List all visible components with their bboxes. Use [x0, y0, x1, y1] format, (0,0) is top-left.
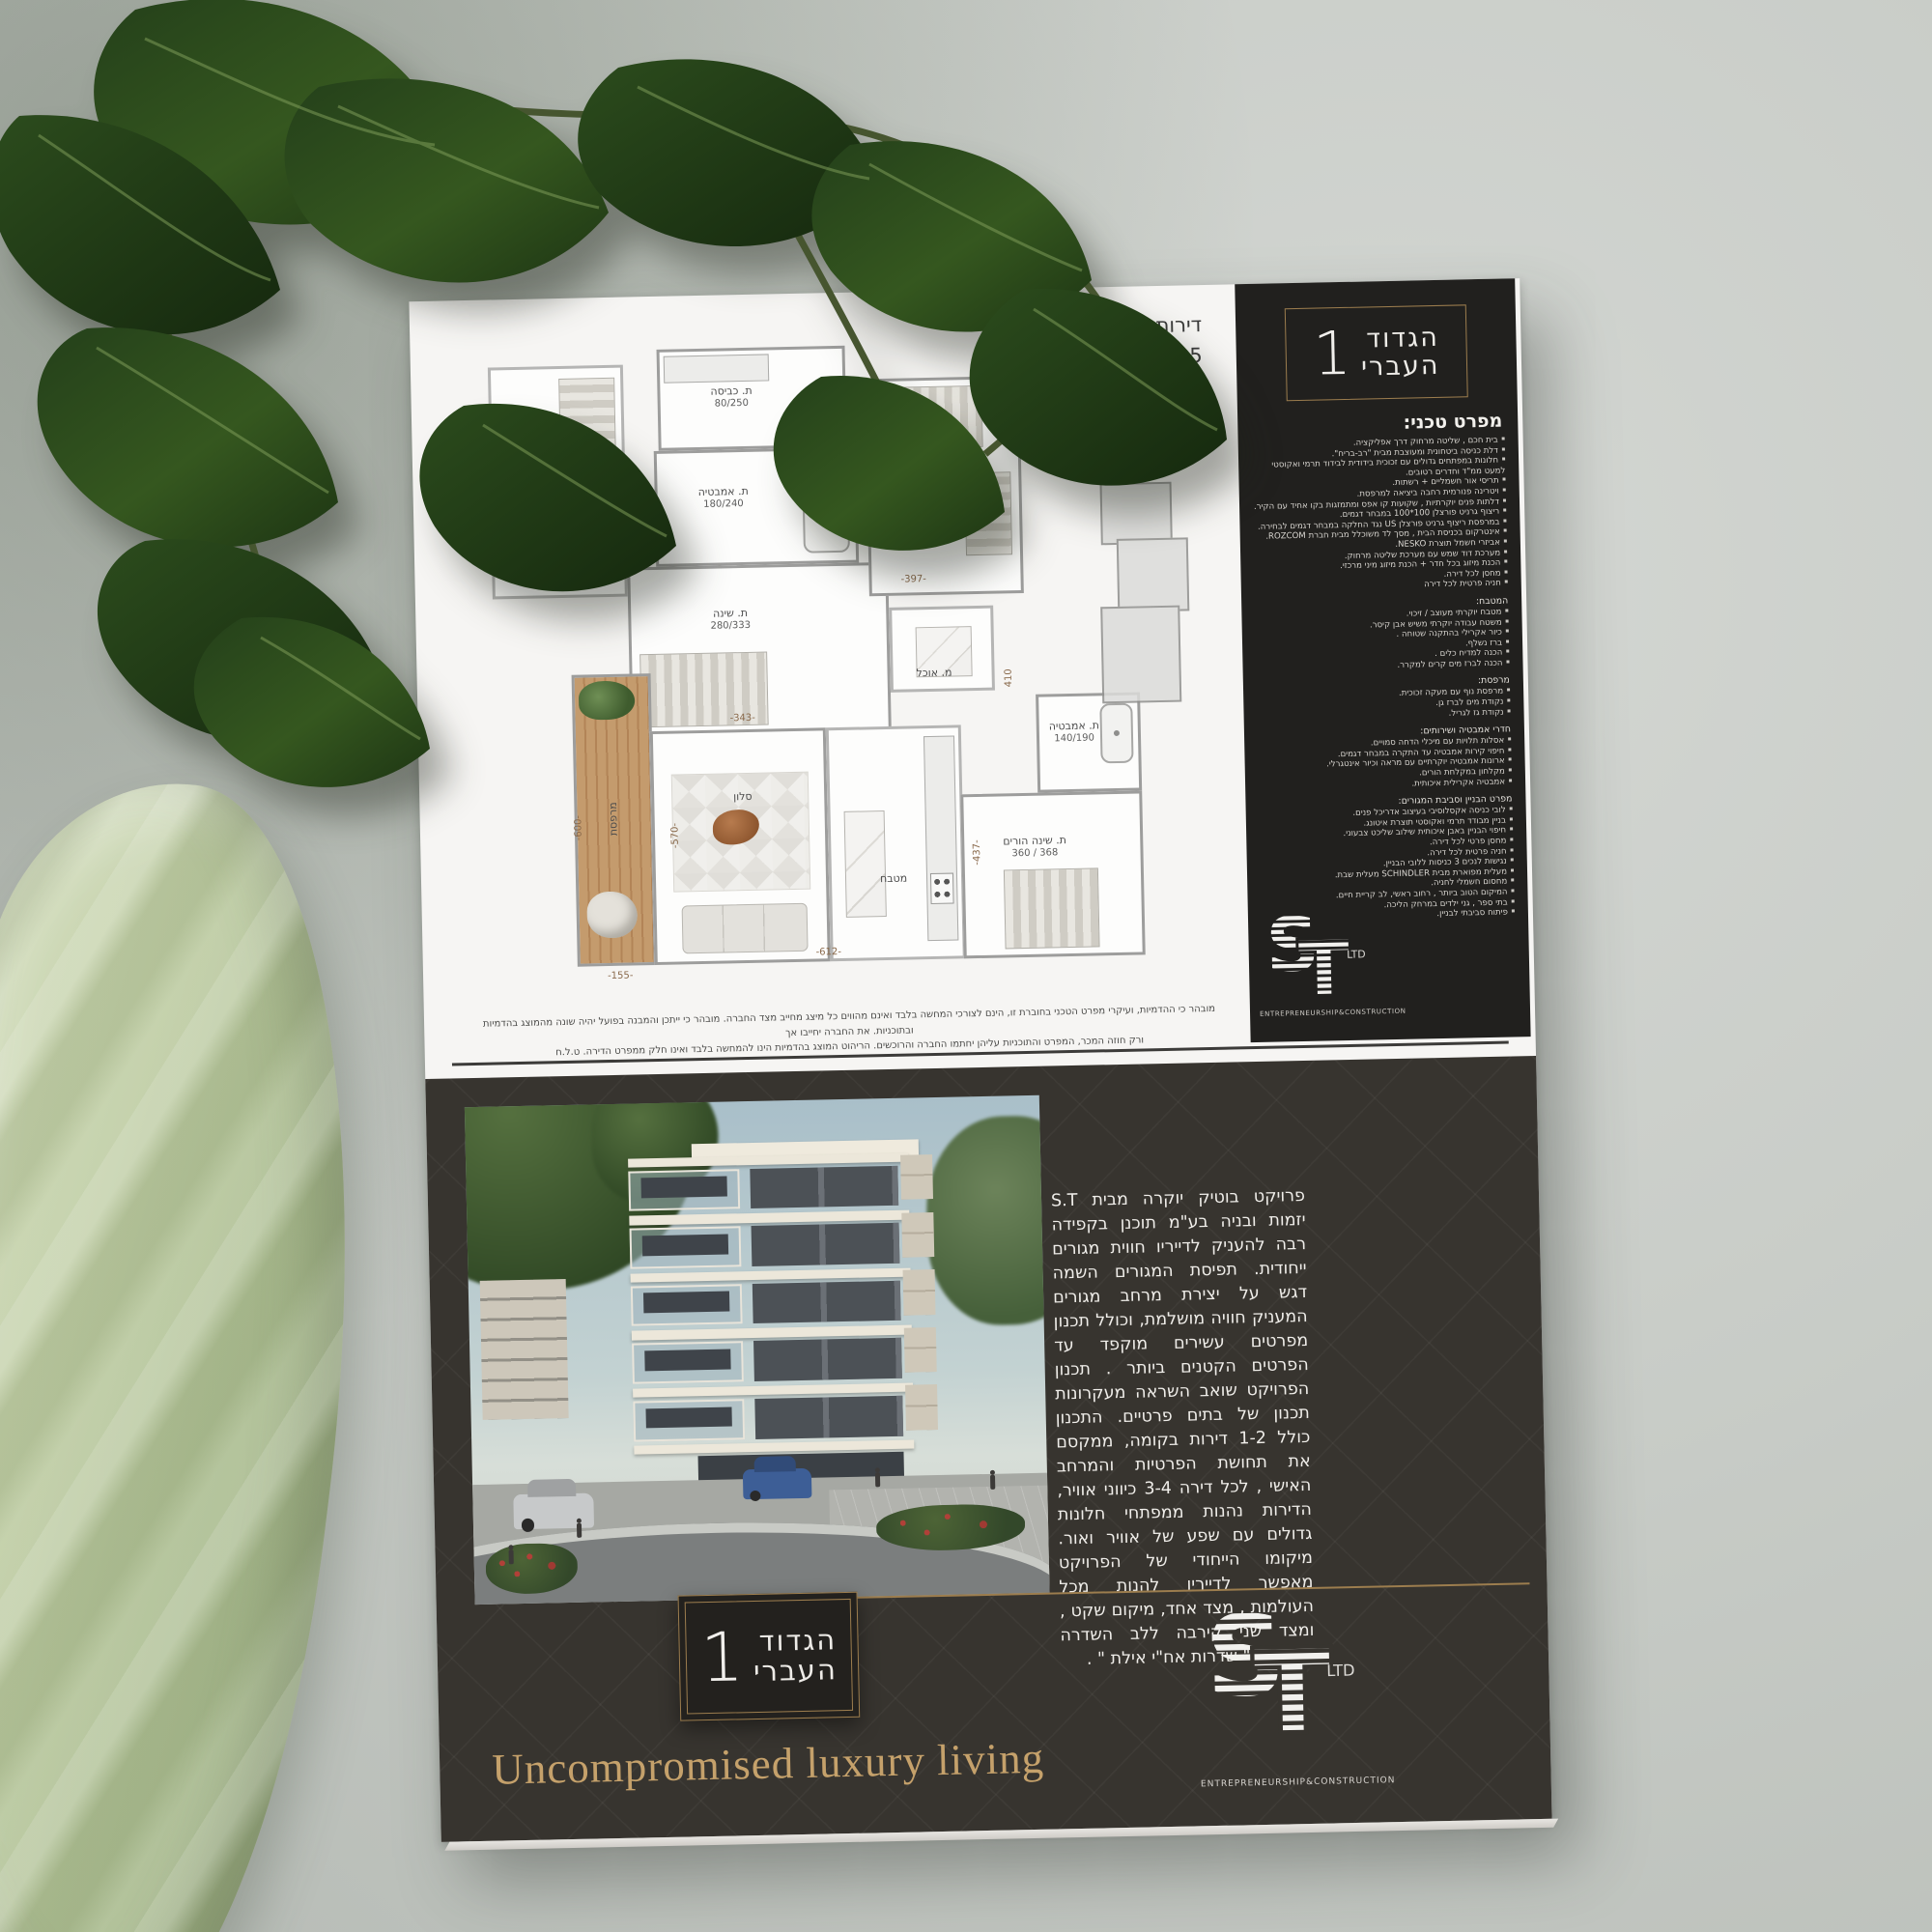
svg-text:LTD: LTD: [1326, 1662, 1355, 1681]
kitchen-counter: [923, 735, 958, 941]
laundry-machines: [664, 354, 770, 383]
brand-wordmark: הגדוד העברי: [1360, 324, 1440, 382]
room-label-balcony: מרפסת: [607, 802, 620, 836]
room-bed2: [627, 562, 892, 737]
room-label-laundry: ת. כביסה80/250: [710, 384, 753, 411]
person-silhouette: [874, 1472, 879, 1487]
brand-numeral: 1: [700, 1627, 745, 1689]
balcony-lounge: [586, 891, 638, 938]
dim-397: -397-: [900, 574, 926, 585]
spec-list-general: בית חכם , שליטה מרחוק דרך אפליקציה.דלת כ…: [1252, 435, 1508, 593]
building-floor: [645, 1210, 911, 1273]
room-bath1: [654, 447, 859, 567]
room-label-kitchen: מטבח: [880, 872, 907, 886]
dim-570: -570-: [669, 823, 681, 849]
person-silhouette: [508, 1549, 513, 1564]
building-main: [643, 1152, 915, 1496]
building-far: [480, 1279, 569, 1420]
room-label-bed1: ת. שינה287/380: [891, 481, 931, 507]
floor-plan: ת. כביסה80/250 ת. אמבטיה180/240 ת. שינה2…: [463, 328, 1240, 1025]
spec-list-balcony: מרפסת נוף עם מעקה זכוכית.נקודת מים לברז …: [1257, 687, 1511, 723]
marketing-paragraph: פרויקט בוטיק יוקרה מבית S.T יזמות ובניה …: [1051, 1184, 1315, 1673]
room-label-master: ת. שינה הורים368 / 360: [1003, 834, 1066, 861]
desk: [558, 378, 615, 448]
room-study: [488, 365, 628, 600]
bathtub: [1099, 703, 1133, 764]
st-logo: S T T LTD: [1265, 907, 1374, 1009]
dim-410: 410: [1004, 668, 1014, 687]
st-logo-bottom: S T T LTD: [1205, 1601, 1367, 1752]
apartment-number: דירות 5,7: [980, 310, 1203, 345]
apartment-info: דירות 5,7 5 חדרים כ- מ''ר 120 מרפסת כ- מ…: [980, 310, 1204, 406]
key-plan-block: [1100, 482, 1173, 546]
brand-logo: 1 הגדוד העברי: [1285, 304, 1468, 401]
svg-text:LTD: LTD: [1347, 948, 1366, 960]
desk: [964, 471, 1012, 555]
bed: [873, 385, 982, 449]
brand-logo-bottom: 1 הגדוד העברי: [678, 1592, 861, 1721]
key-plan-block: [1100, 606, 1181, 704]
brochure-page: ת. כביסה80/250 ת. אמבטיה180/240 ת. שינה2…: [409, 278, 1551, 1842]
apartment-balcony-area: מרפסת כ- מ''ר 11: [980, 371, 1204, 406]
dim-343: -343-: [729, 713, 755, 724]
kitchen-island: [844, 810, 887, 918]
stove: [930, 873, 954, 904]
spec-list-kitchen: מטבח יוקרתי מעוצב / זיכוי.משטח עבודה יוק…: [1255, 607, 1509, 673]
site-key-plan: [1093, 481, 1190, 707]
room-kitchen: [826, 724, 966, 961]
room-label-living: סלון: [733, 790, 753, 804]
dim-437: -437-: [972, 839, 983, 866]
svg-text:T: T: [1298, 925, 1350, 1006]
spec-panel: 1 הגדוד העברי מפרט טכני: בית חכם , שליטה…: [1235, 278, 1530, 1042]
apartment-rooms-area: 5 חדרים כ- מ''ר 120: [980, 341, 1203, 376]
building-floor: [647, 1325, 913, 1388]
brand-wordmark: הגדוד העברי: [753, 1625, 838, 1687]
brand-numeral: 1: [1313, 327, 1352, 382]
sofa: [682, 903, 809, 954]
building-floor: [648, 1382, 914, 1445]
photo-scene: ת. כביסה80/250 ת. אמבטיה180/240 ת. שינה2…: [0, 0, 1932, 1932]
balcony-plants: [579, 680, 636, 720]
spec-list-bath: אסלות תלויות עם מיכלי הדחה סמויים.חיפוי …: [1258, 736, 1512, 792]
building-render: [465, 1095, 1050, 1605]
room-label-bath2: ת. אמבטיה140/190: [1049, 719, 1100, 745]
room-label-dining: מ. אוכל: [916, 667, 952, 681]
svg-text:N: N: [1093, 450, 1100, 461]
dim-600: -600-: [573, 815, 584, 841]
person-silhouette: [989, 1475, 994, 1490]
dim-612: -612-: [816, 947, 842, 958]
room-master: [960, 790, 1146, 958]
dim-155: -155-: [608, 971, 634, 982]
car-blue: [742, 1468, 811, 1499]
person-silhouette: [577, 1523, 582, 1538]
north-compass-icon: N: [1091, 423, 1134, 470]
car-silver: [513, 1492, 594, 1529]
room-label-bath1: ת. אמבטיה180/240: [697, 485, 749, 511]
svg-text:T: T: [1253, 1627, 1331, 1748]
bathtub: [802, 460, 850, 554]
room-bed1: [865, 376, 1024, 596]
room-label-bed2: ת. שינה280/333: [710, 607, 751, 633]
bottom-section: 1 הגדוד העברי Uncompromised luxury livin…: [425, 1056, 1551, 1842]
key-plan-block: [1117, 537, 1190, 612]
spec-list-building: לובי כניסה אקסלוסיבי בעיצוב אדריכל פנים.…: [1260, 806, 1515, 923]
bed: [1004, 867, 1100, 949]
building-floor: [643, 1152, 909, 1215]
tree-right: [924, 1114, 1049, 1326]
spec-title: מפרט טכני:: [1253, 411, 1502, 437]
building-floor: [646, 1267, 912, 1330]
